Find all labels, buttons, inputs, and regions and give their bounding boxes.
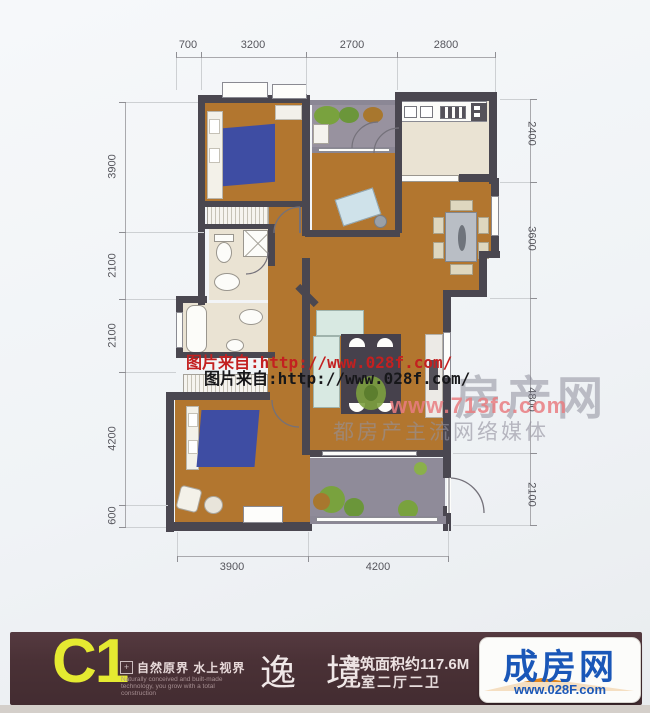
footer-tagline-cn: 自然原界 水上视界 [137,659,245,676]
dim-label-left-1: 2100 [107,236,120,296]
dim-ext [126,102,198,103]
dim-ext [177,532,178,556]
footer-tagline-en: Naturally conceived and built-made techn… [121,676,223,697]
unit-code: C1 [52,626,127,697]
footer-tagline-en-line2: technology, you grow with a total [121,683,223,690]
page-bottom-strip [0,705,650,713]
dim-label-right-1: 3600 [525,209,538,269]
dim-ext [126,527,166,528]
dim-ext [453,525,530,526]
dim-line-top [176,57,495,58]
dim-label-top-3: 2800 [416,39,476,52]
dim-ext [495,58,496,92]
door-arc [246,252,268,274]
area-text: 建筑面积约117.6M [345,653,469,674]
dim-ext [308,532,309,556]
dim-label-left-3: 4200 [107,409,120,469]
door-arc [374,128,399,153]
watermark-photo-credit-black: 图片来自:http://www.028f.com/ [204,365,470,389]
dim-ext [126,372,176,373]
dim-ext [490,298,530,299]
footer-tagline-en-line1: Naturally conceived and built-made [121,676,223,683]
dim-ext [306,58,307,94]
logo-box: 成房网 www.028F.com [479,637,641,703]
dim-ext [453,453,530,454]
dim-label-top-0: 700 [158,39,218,52]
dim-ext [126,299,176,300]
logo-site-url: www.028F.com [480,682,640,697]
plus-box-icon: + [120,661,133,674]
layout-text: 三室二厅二卫 [345,672,441,692]
door-arc [272,400,299,427]
dim-label-left-0: 3900 [107,137,120,197]
door-arc [449,478,484,513]
floorplan-page: 700 3200 2700 2800 3900 2100 2100 4200 6… [0,0,650,713]
dim-ext [500,182,530,183]
dim-ext [126,232,204,233]
door-arc [352,122,378,148]
dim-ext [397,58,398,90]
watermark-site-slogan: 都房产主流网络媒体 [333,416,549,446]
dim-ext [448,524,449,556]
dim-label-bottom-1: 4200 [348,561,408,574]
dim-label-left-2: 2100 [107,306,120,366]
door-arc [274,207,300,233]
dim-ext [176,58,177,90]
dim-label-top-2: 2700 [322,39,382,52]
dim-label-right-3: 2100 [525,465,538,525]
dim-label-left-4: 600 [107,486,120,546]
dim-label-right-0: 2400 [525,104,538,164]
dim-line-bottom [177,556,448,557]
dim-ext [126,505,168,506]
footer-tagline-en-line3: construction [121,690,223,697]
dim-label-top-1: 3200 [223,39,283,52]
dim-ext [201,58,202,90]
dim-ext [500,99,530,100]
dim-label-bottom-0: 3900 [202,561,262,574]
dim-line-left [125,102,126,527]
